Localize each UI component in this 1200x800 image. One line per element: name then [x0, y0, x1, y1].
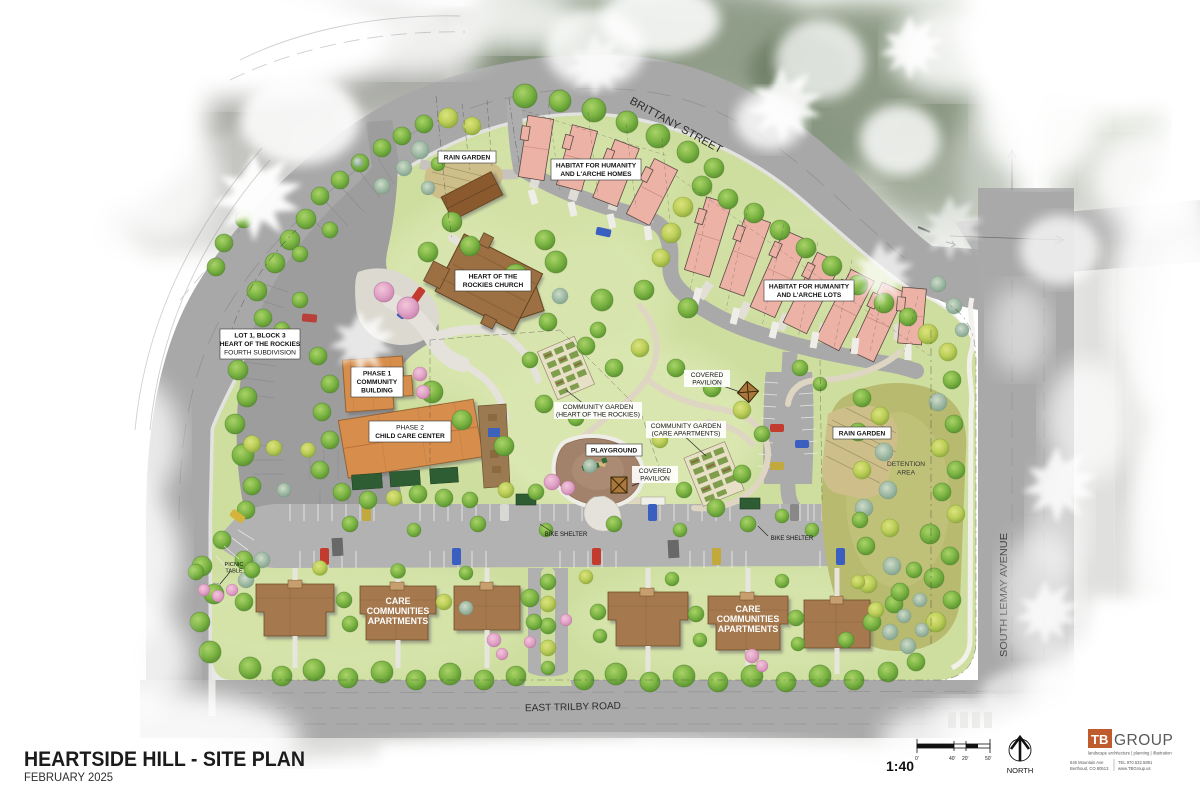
svg-text:BIKE SHELTER: BIKE SHELTER: [545, 532, 588, 538]
svg-text:HABITAT FOR HUMANITY: HABITAT FOR HUMANITY: [769, 284, 850, 291]
svg-text:COMMUNITY GARDEN: COMMUNITY GARDEN: [563, 404, 634, 411]
svg-text:COVERED: COVERED: [639, 468, 672, 475]
svg-text:ROCKIES CHURCH: ROCKIES CHURCH: [463, 282, 524, 289]
svg-text:20': 20': [962, 756, 969, 762]
svg-text:645 Mountain Ave: 645 Mountain Ave: [1070, 760, 1104, 765]
svg-text:APARTMENTS: APARTMENTS: [718, 624, 779, 634]
svg-text:Berthoud, CO 80513: Berthoud, CO 80513: [1070, 766, 1109, 771]
svg-text:(HEART OF THE ROCKIES): (HEART OF THE ROCKIES): [556, 412, 640, 419]
svg-text:COVERED: COVERED: [691, 372, 724, 379]
svg-text:HEART OF THE ROCKIES: HEART OF THE ROCKIES: [220, 341, 301, 348]
svg-text:RAIN GARDEN: RAIN GARDEN: [444, 155, 491, 162]
svg-text:CHILD CARE CENTER: CHILD CARE CENTER: [375, 433, 445, 440]
svg-text:AND L'ARCHE HOMES: AND L'ARCHE HOMES: [560, 171, 632, 178]
svg-text:AREA: AREA: [897, 470, 916, 477]
svg-text:PHASE 2: PHASE 2: [396, 425, 424, 432]
svg-text:TABLE: TABLE: [225, 569, 243, 575]
svg-text:50': 50': [985, 756, 992, 762]
svg-text:landscape architecture | plann: landscape architecture | planning | illu…: [1088, 751, 1172, 756]
svg-text:COMMUNITIES: COMMUNITIES: [367, 606, 430, 616]
svg-text:BUILDING: BUILDING: [361, 388, 393, 395]
svg-text:(CARE APARTMENTS): (CARE APARTMENTS): [652, 431, 721, 438]
svg-text:LOT 1, BLOCK 3: LOT 1, BLOCK 3: [234, 333, 286, 340]
svg-text:DETENTION: DETENTION: [887, 461, 925, 468]
svg-text:GROUP: GROUP: [1114, 732, 1173, 749]
svg-text:PHASE 1: PHASE 1: [363, 371, 392, 378]
svg-text:HABITAT FOR HUMANITY: HABITAT FOR HUMANITY: [556, 163, 637, 170]
svg-text:PAVILION: PAVILION: [692, 380, 722, 387]
svg-text:AND L'ARCHE LOTS: AND L'ARCHE LOTS: [777, 292, 842, 299]
svg-text:NORTH: NORTH: [1007, 766, 1034, 775]
svg-text:FEBRUARY 2025: FEBRUARY 2025: [24, 770, 113, 784]
svg-text:CARE: CARE: [736, 604, 761, 614]
svg-text:1:40: 1:40: [886, 758, 914, 774]
svg-text:HEARTSIDE HILL - SITE PLAN: HEARTSIDE HILL - SITE PLAN: [24, 747, 305, 771]
svg-text:www.TBGroup.us: www.TBGroup.us: [1118, 766, 1151, 771]
svg-text:PAVILION: PAVILION: [640, 476, 670, 483]
svg-text:0': 0': [915, 756, 919, 762]
svg-text:BIKE SHELTER: BIKE SHELTER: [771, 536, 814, 542]
svg-text:APARTMENTS: APARTMENTS: [368, 616, 429, 626]
svg-text:HEART OF THE: HEART OF THE: [469, 274, 518, 281]
svg-text:COMMUNITY GARDEN: COMMUNITY GARDEN: [651, 423, 722, 430]
svg-text:COMMUNITY: COMMUNITY: [357, 379, 398, 386]
svg-text:TB: TB: [1091, 732, 1108, 747]
svg-text:CARE: CARE: [386, 596, 411, 606]
svg-text:COMMUNITIES: COMMUNITIES: [717, 614, 780, 624]
svg-text:TEL 970.532.5891: TEL 970.532.5891: [1118, 760, 1153, 765]
svg-text:FOURTH SUBDIVISION: FOURTH SUBDIVISION: [224, 350, 296, 357]
svg-text:RAIN GARDEN: RAIN GARDEN: [839, 431, 886, 438]
svg-text:PICNIC: PICNIC: [225, 562, 244, 568]
svg-text:PLAYGROUND: PLAYGROUND: [591, 448, 638, 455]
svg-text:40': 40': [949, 756, 956, 762]
